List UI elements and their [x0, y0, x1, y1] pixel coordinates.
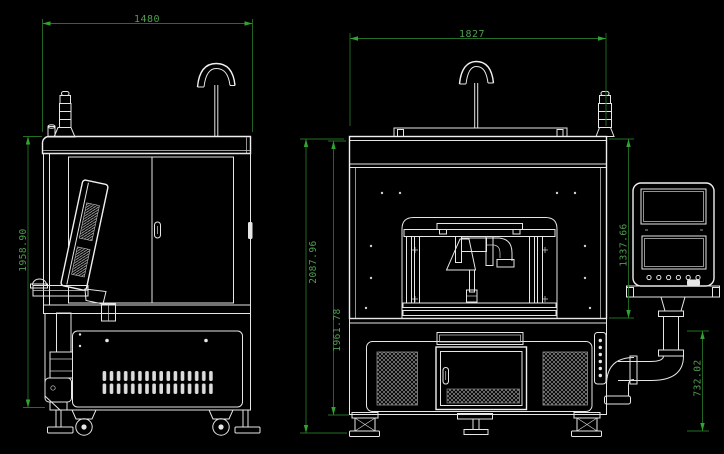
front-hook-icon: [460, 62, 494, 129]
front-vent-mesh-left: [377, 352, 418, 405]
dim-side-height: 1958.90: [18, 137, 45, 408]
front-base: [350, 319, 607, 415]
front-gantry: [402, 218, 557, 319]
cad-canvas: 1480 1958.90: [0, 0, 724, 454]
dim-front-body-height: 1961.78: [328, 141, 349, 415]
panel-screen-top: [641, 189, 706, 224]
front-signal-tower-icon: [596, 92, 614, 137]
front-base-door: [436, 347, 527, 410]
side-support-column: [45, 313, 73, 410]
dim-front-overall-height: 2087.96: [300, 139, 347, 433]
side-view: 1480 1958.90: [18, 14, 260, 435]
dim-side-width: 1480: [43, 14, 253, 132]
side-hook-icon: [198, 64, 236, 137]
side-door-handle: [155, 222, 161, 238]
front-button-strip: [595, 333, 607, 385]
panel-buttons: [647, 275, 700, 279]
side-caster-left: [48, 410, 97, 435]
dim-front-lower-height: 732.02: [687, 331, 709, 431]
front-vent-mesh-right: [543, 352, 588, 405]
front-foot-left: [350, 413, 380, 437]
dim-side-width-value: 1480: [134, 14, 160, 25]
dim-front-lower-height-value: 732.02: [693, 359, 704, 396]
panel-screen-bottom: [642, 236, 706, 269]
dim-front-width-value: 1827: [459, 29, 485, 40]
dim-front-enclosure-height-value: 1337.66: [619, 223, 630, 267]
side-base: [45, 314, 251, 411]
side-caster-right: [209, 410, 260, 435]
dim-front-overall-height-value: 2087.96: [308, 240, 319, 284]
side-vent-slots: [101, 371, 215, 396]
dim-front-body-height-value: 1961.78: [332, 308, 343, 352]
dim-side-height-value: 1958.90: [18, 228, 29, 272]
front-body: [350, 137, 607, 319]
cad-drawing: 1480 1958.90: [0, 0, 724, 454]
side-signal-tower-icon: [48, 92, 75, 138]
front-work-head: [447, 237, 515, 303]
front-door-handle: [443, 368, 449, 385]
front-monitor-arm: [605, 311, 684, 404]
front-door-vent: [447, 389, 520, 403]
front-roof-plate: [394, 128, 567, 137]
side-top-cap: [43, 137, 251, 154]
front-view: 1827 2087.96 1961.78 1337.66: [300, 29, 720, 437]
front-foot-center: [458, 414, 493, 435]
front-control-panel: [627, 183, 720, 311]
side-hinge: [248, 222, 253, 239]
front-foot-right: [572, 413, 602, 437]
dim-front-enclosure-height: 1337.66: [609, 139, 634, 318]
panel-latch: [687, 280, 700, 287]
